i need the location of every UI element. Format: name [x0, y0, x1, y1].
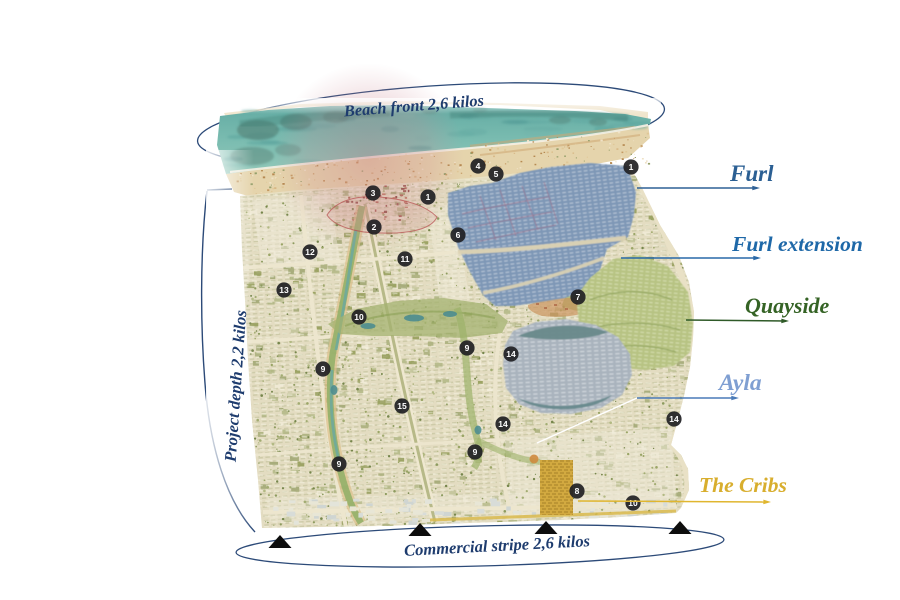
svg-text:Furl: Furl	[729, 161, 774, 186]
svg-text:14: 14	[506, 349, 516, 359]
svg-text:4: 4	[476, 161, 481, 171]
svg-text:8: 8	[575, 486, 580, 496]
svg-text:1: 1	[629, 162, 634, 172]
svg-text:Quayside: Quayside	[745, 293, 830, 318]
svg-text:12: 12	[305, 247, 315, 257]
svg-text:10: 10	[628, 498, 638, 508]
svg-text:9: 9	[465, 343, 470, 353]
svg-text:7: 7	[576, 292, 581, 302]
svg-text:9: 9	[473, 447, 478, 457]
svg-text:2: 2	[372, 222, 377, 232]
svg-text:11: 11	[401, 254, 410, 264]
svg-text:14: 14	[498, 419, 508, 429]
svg-text:6: 6	[456, 230, 461, 240]
svg-text:3: 3	[371, 188, 376, 198]
svg-text:10: 10	[354, 312, 364, 322]
svg-text:5: 5	[494, 169, 499, 179]
svg-text:1: 1	[426, 192, 431, 202]
svg-text:The Cribs: The Cribs	[699, 473, 787, 497]
svg-text:Ayla: Ayla	[717, 370, 762, 396]
svg-text:9: 9	[321, 364, 326, 374]
svg-text:14: 14	[669, 414, 679, 424]
svg-text:13: 13	[279, 285, 289, 295]
svg-text:15: 15	[397, 401, 407, 411]
svg-text:Furl extension: Furl extension	[731, 232, 863, 256]
svg-text:9: 9	[337, 459, 342, 469]
